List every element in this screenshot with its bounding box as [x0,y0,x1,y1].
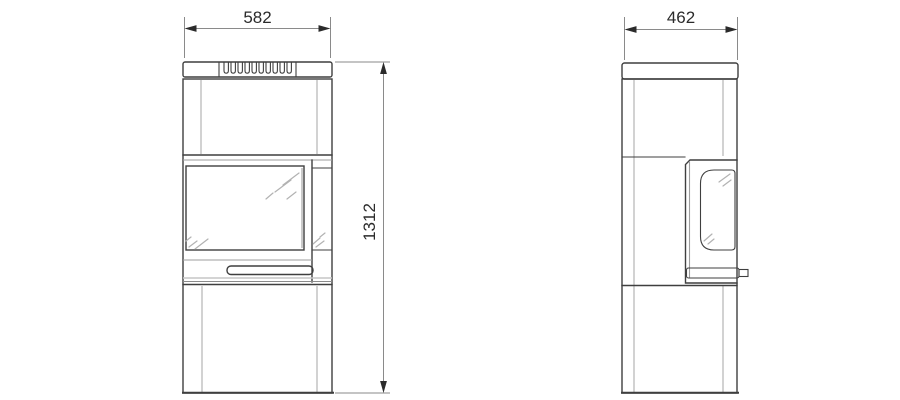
arrowhead-up-icon [380,62,387,74]
arrowhead-left-icon [185,25,197,32]
arrowhead-left-icon [625,26,637,33]
vent-grille [219,63,296,77]
front-body [183,79,332,393]
side-depth-value: 462 [667,8,695,27]
side-top-plate [622,63,738,79]
front-door-side-column [312,160,331,282]
side-depth-dimension: 462 [625,8,738,60]
side-glass-reflection-marks [704,174,731,244]
side-door-handle [687,268,749,278]
glass-reflection-marks [186,173,299,249]
arrowhead-down-icon [380,381,387,393]
side-view [622,63,748,393]
front-view [183,62,333,393]
arrowhead-right-icon [726,26,738,33]
front-top-plate [183,62,332,77]
arrowhead-right-icon [319,25,331,32]
side-door-profile [686,160,738,283]
height-dimension: 1312 [335,62,390,393]
technical-drawing: 582 462 1312 [0,0,900,400]
door-handle [227,266,313,275]
side-body [622,79,737,393]
side-door-glass [701,170,736,250]
vent-grille-slots [224,63,291,73]
front-width-value: 582 [243,8,271,27]
height-value: 1312 [360,203,379,241]
drawing-canvas: 582 462 1312 [0,0,900,400]
front-door-glass [186,166,304,250]
front-width-dimension: 582 [185,8,331,58]
